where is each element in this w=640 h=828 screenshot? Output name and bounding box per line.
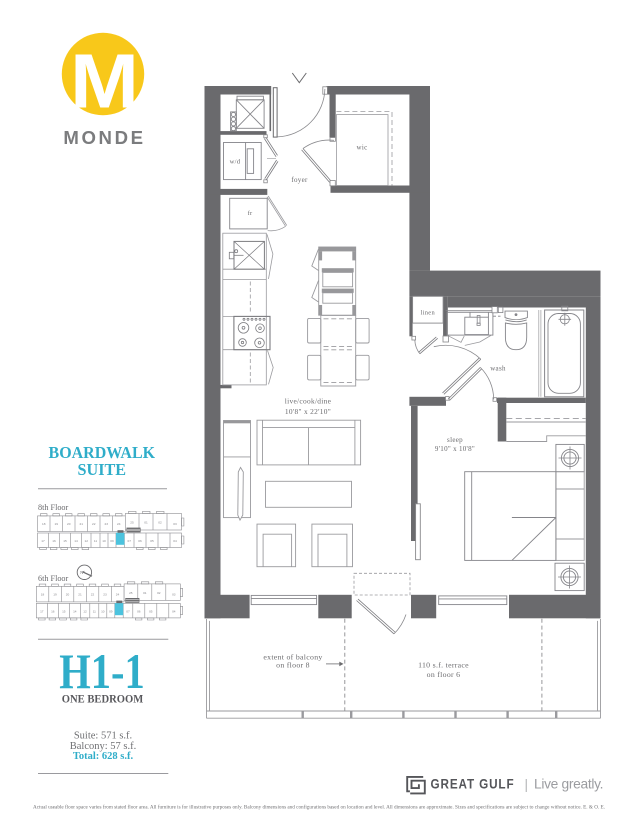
svg-text:02: 02 <box>158 521 162 525</box>
svg-text:14: 14 <box>74 539 78 543</box>
svg-text:20: 20 <box>67 522 71 526</box>
svg-text:18: 18 <box>42 522 46 526</box>
svg-text:24: 24 <box>117 522 121 526</box>
svg-text:17: 17 <box>41 539 45 543</box>
svg-text:22: 22 <box>92 522 96 526</box>
svg-text:on floor 6: on floor 6 <box>427 670 461 679</box>
svg-text:01: 01 <box>144 521 148 525</box>
svg-text:GREAT GULF: GREAT GULF <box>431 777 515 792</box>
svg-text:live/cook/dine: live/cook/dine <box>285 397 332 406</box>
svg-text:SUITE: SUITE <box>78 460 127 479</box>
svg-text:07: 07 <box>127 539 131 543</box>
svg-text:06: 06 <box>138 539 142 543</box>
svg-text:03: 03 <box>173 522 177 526</box>
svg-text:sleep: sleep <box>447 436 463 444</box>
svg-text:Live greatly.: Live greatly. <box>534 777 604 792</box>
svg-text:16: 16 <box>52 539 56 543</box>
svg-text:MONDE: MONDE <box>63 127 145 148</box>
svg-text:wic: wic <box>356 144 367 152</box>
svg-text:04: 04 <box>173 539 177 543</box>
svg-text:11: 11 <box>94 539 97 543</box>
svg-text:10: 10 <box>102 539 106 543</box>
svg-text:Total: 628 s.f.: Total: 628 s.f. <box>73 751 134 762</box>
svg-text:09: 09 <box>110 539 114 543</box>
svg-text:05: 05 <box>150 539 154 543</box>
svg-text:19: 19 <box>54 522 58 526</box>
svg-text:on floor 8: on floor 8 <box>276 661 310 670</box>
svg-text:25: 25 <box>130 521 134 525</box>
svg-text:8th Floor: 8th Floor <box>38 503 69 512</box>
svg-text:23: 23 <box>104 522 108 526</box>
svg-text:|: | <box>525 777 529 792</box>
svg-text:wash: wash <box>490 365 506 373</box>
svg-text:110 s.f. terrace: 110 s.f. terrace <box>418 661 469 670</box>
svg-text:15: 15 <box>63 539 67 543</box>
svg-text:fr: fr <box>248 210 253 217</box>
svg-text:9'10" x 10'8": 9'10" x 10'8" <box>435 445 475 453</box>
svg-text:Suite: 571 s.f.: Suite: 571 s.f. <box>74 731 132 742</box>
svg-text:6th Floor: 6th Floor <box>38 574 69 583</box>
svg-text:M: M <box>70 39 139 125</box>
svg-text:12: 12 <box>84 539 88 543</box>
svg-text:10'8" x 22'10": 10'8" x 22'10" <box>285 407 331 416</box>
svg-text:linen: linen <box>421 310 436 317</box>
svg-text:ONE BEDROOM: ONE BEDROOM <box>62 694 144 706</box>
svg-text:H1-1: H1-1 <box>59 643 145 699</box>
svg-text:w/d: w/d <box>230 159 241 166</box>
svg-text:foyer: foyer <box>291 176 308 184</box>
svg-text:21: 21 <box>79 522 83 526</box>
svg-text:Actual useable floor space var: Actual useable floor space varies from s… <box>33 806 605 811</box>
